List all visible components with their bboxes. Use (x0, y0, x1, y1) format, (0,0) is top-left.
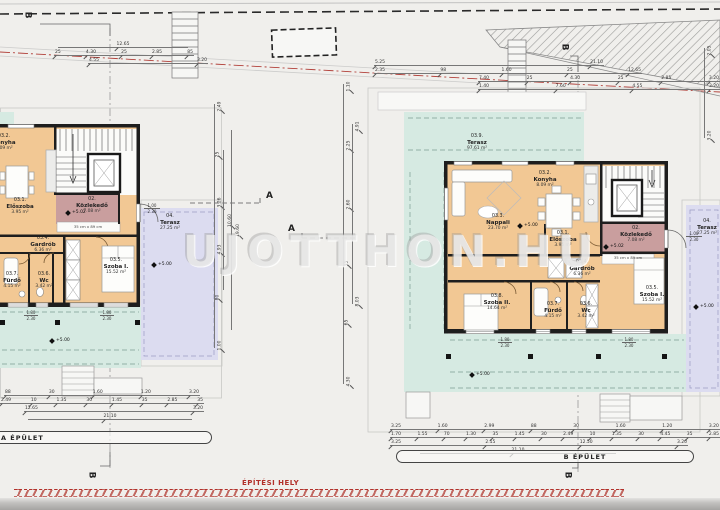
dim-chain-top-b1: 5.2521.10 (374, 58, 604, 66)
level-marker-a-corridor: +5.02 (66, 210, 86, 215)
level-marker-b-garden-terrace: +5.00 (470, 372, 490, 377)
level-marker-a-garden-terrace: +5.00 (50, 338, 70, 343)
building-b (368, 88, 720, 432)
window-dim-a1: 1.802.30 (24, 310, 38, 321)
banner-building-a: A ÉPÜLET (0, 431, 212, 444)
dim-chain-bottom-b1: 3.251.602.9988301.601.203.20 (390, 422, 720, 430)
window-dim-b1: 1.802.30 (498, 337, 512, 348)
dim-chain-right-v: 2.053.20 (704, 48, 713, 138)
section-marker-a-right: A (288, 224, 295, 234)
site-boundary-hatch (14, 489, 624, 497)
window-dim-a2: 1.802.30 (100, 310, 114, 321)
diamond-icon (693, 304, 699, 310)
level-marker-b-terrace: +5.00 (694, 304, 714, 309)
diamond-icon (49, 338, 55, 344)
site-boundary-label: ÉPÍTÉSI HELY (242, 479, 299, 487)
level-marker-b-nappali: +5.00 (518, 223, 538, 228)
dim-chain-bottom-a4: 21.10 (28, 412, 192, 420)
dim-chain-bottom-a2: 2.49101.35301.45352.8535 (0, 396, 204, 404)
dim-chain-top-b3: 7.40254.30252.853.20 (478, 74, 720, 82)
bottom-edge-bar (0, 498, 720, 510)
dim-chain-b-v2: 4.918.03 (352, 124, 361, 304)
door-dim-a: 1.002.30 (144, 203, 160, 214)
dim-chain-b-v1: 1.102.252.6035654.30 (343, 84, 352, 384)
building-a (0, 108, 222, 398)
site-plan-canvas: 03.2. Konyha 8.09 m² 03.1. Előszoba 3.95… (0, 0, 720, 510)
dashed-structure-outline (272, 28, 337, 57)
dim-chain-top-b4: 1.407.604.553.20 (478, 82, 720, 90)
level-marker-a-terrace: +5.00 (152, 262, 172, 267)
section-marker-b-bottom-left: B (86, 472, 96, 479)
dim-chain-mid-v1: 2.49253.264.93801.00 (214, 104, 223, 348)
dim-chain-mid-v3: 19.60 (231, 130, 240, 330)
door-dim-b: 1.002.30 (686, 231, 702, 242)
diamond-icon (517, 223, 523, 229)
diamond-icon (469, 372, 475, 378)
window-dim-b2: 1.802.30 (622, 337, 636, 348)
stair-note-a: 35 cm x 89 cm (58, 224, 118, 229)
level-marker-b-corridor: +5.02 (604, 244, 624, 249)
dim-chain-bottom-b2: 1.701.55701.30351.45302.49101.35304.4535… (390, 430, 720, 438)
dim-chain-top-a3: 4.553.20 (88, 56, 208, 64)
dim-chain-bottom-a1: 88301.601.203.20 (4, 388, 200, 396)
section-marker-a-left: A (266, 191, 273, 201)
dim-chain-top-b2: 2.35981.602512.65 (374, 66, 642, 74)
section-marker-b-bottom-right: B (562, 472, 572, 479)
dim-chain-top-a2: 254.30252.8585 (54, 48, 194, 56)
banner-building-b: B ÉPÜLET (396, 450, 694, 463)
dim-chain-bottom-a3: 12.653.20 (24, 404, 204, 412)
dim-chain-bottom-b3: 3.252.1512.503.20 (390, 438, 688, 446)
diamond-icon (151, 262, 157, 268)
stair-note-b: 35 cm x 89 cm (603, 255, 653, 260)
dim-chain-top-a1: 12.65 (58, 40, 188, 48)
section-marker-b-top-right: B (559, 44, 569, 51)
section-marker-b-top-left: B (22, 12, 32, 19)
diamond-icon (65, 210, 71, 216)
diamond-icon (603, 244, 609, 250)
